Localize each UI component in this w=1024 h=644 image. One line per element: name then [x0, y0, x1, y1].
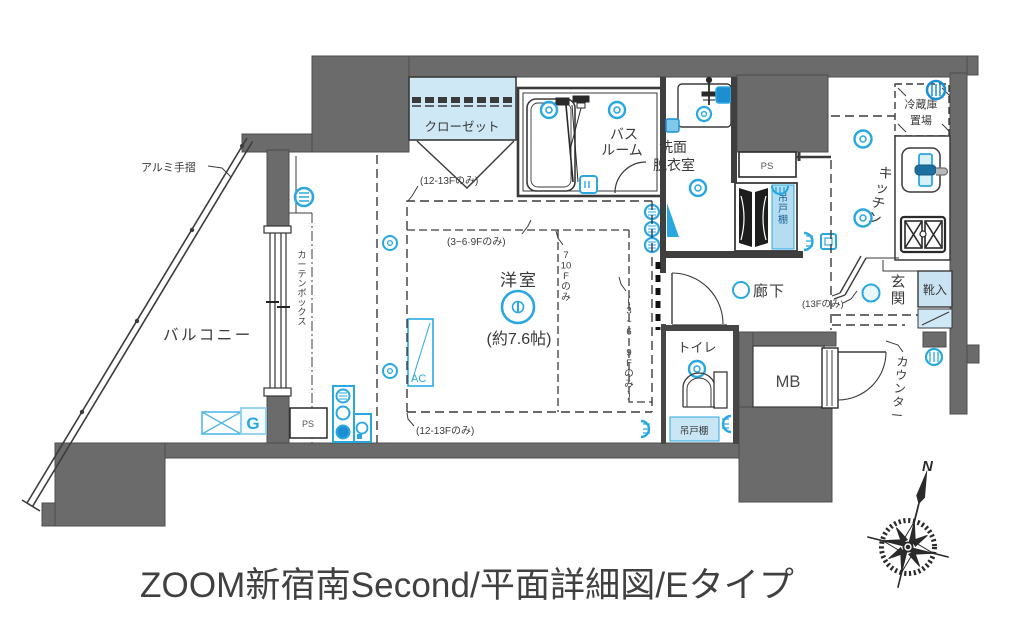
- svg-text:PS: PS: [761, 161, 774, 172]
- svg-text:(約7.6帖): (約7.6帖): [487, 330, 552, 348]
- svg-text:(12-13Fのみ): (12-13Fのみ): [420, 176, 478, 187]
- svg-text:MB: MB: [776, 373, 801, 391]
- svg-text:G: G: [246, 414, 259, 433]
- svg-text:710Fのみ: 710Fのみ: [561, 250, 572, 303]
- svg-text:N: N: [922, 458, 934, 475]
- svg-text:洗面: 洗面: [659, 139, 687, 155]
- svg-text:バス: バス: [610, 126, 638, 142]
- svg-text:廊下: 廊下: [753, 283, 785, 300]
- svg-text:玄関: 玄関: [891, 274, 906, 308]
- svg-text:(3~6·9Fのみ): (3~6·9Fのみ): [447, 237, 506, 248]
- svg-text:キッチン: キッチン: [866, 163, 895, 227]
- svg-text:ルーム: ルーム: [601, 142, 643, 158]
- svg-text:洋室: 洋室: [500, 271, 538, 290]
- svg-text:PS: PS: [302, 419, 314, 429]
- svg-text:ZOOM新宿南Second/平面詳細図/Eタイプ: ZOOM新宿南Second/平面詳細図/Eタイプ: [140, 566, 794, 605]
- svg-text:クローゼット: クローゼット: [424, 120, 499, 134]
- svg-text:(3~6·9Fのみ): (3~6·9Fのみ): [624, 295, 634, 401]
- svg-text:靴入: 靴入: [923, 283, 947, 297]
- svg-text:カウンター: カウンター: [890, 354, 909, 423]
- svg-text:(12-13Fのみ): (12-13Fのみ): [416, 426, 474, 437]
- svg-text:置場: 置場: [910, 114, 932, 127]
- svg-text:バルコニー: バルコニー: [163, 327, 253, 344]
- svg-text:AC: AC: [411, 373, 426, 385]
- svg-text:トイレ: トイレ: [677, 340, 716, 355]
- svg-text:(13Fのみ): (13Fのみ): [802, 299, 844, 310]
- svg-text:脱衣室: 脱衣室: [653, 157, 695, 173]
- svg-text:アルミ手摺: アルミ手摺: [141, 160, 196, 174]
- svg-text:吊戸棚: 吊戸棚: [778, 192, 788, 226]
- svg-text:カーテンボックス: カーテンボックス: [297, 250, 306, 327]
- svg-text:吊戸棚: 吊戸棚: [680, 425, 709, 437]
